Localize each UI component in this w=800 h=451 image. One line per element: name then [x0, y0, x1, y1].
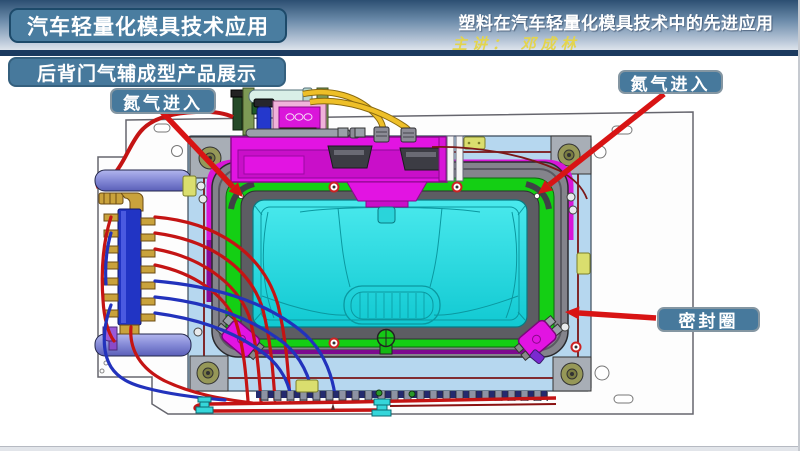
callout-nitrogen-inlet-left: 氮气进入 [110, 88, 216, 114]
callout-nitrogen-inlet-right: 氮气进入 [618, 70, 723, 94]
presentation-slide: 汽车轻量化模具技术应用 塑料在汽车轻量化模具技术中的先进应用 主讲： 邓成林 后… [0, 0, 800, 451]
callout-label: 氮气进入 [631, 70, 711, 95]
mold-cad-diagram [0, 0, 800, 451]
callout-label: 氮气进入 [123, 89, 203, 114]
callout-seal-ring: 密封圈 [657, 307, 760, 332]
callout-label: 密封圈 [679, 307, 739, 332]
lift-ring [377, 329, 395, 354]
